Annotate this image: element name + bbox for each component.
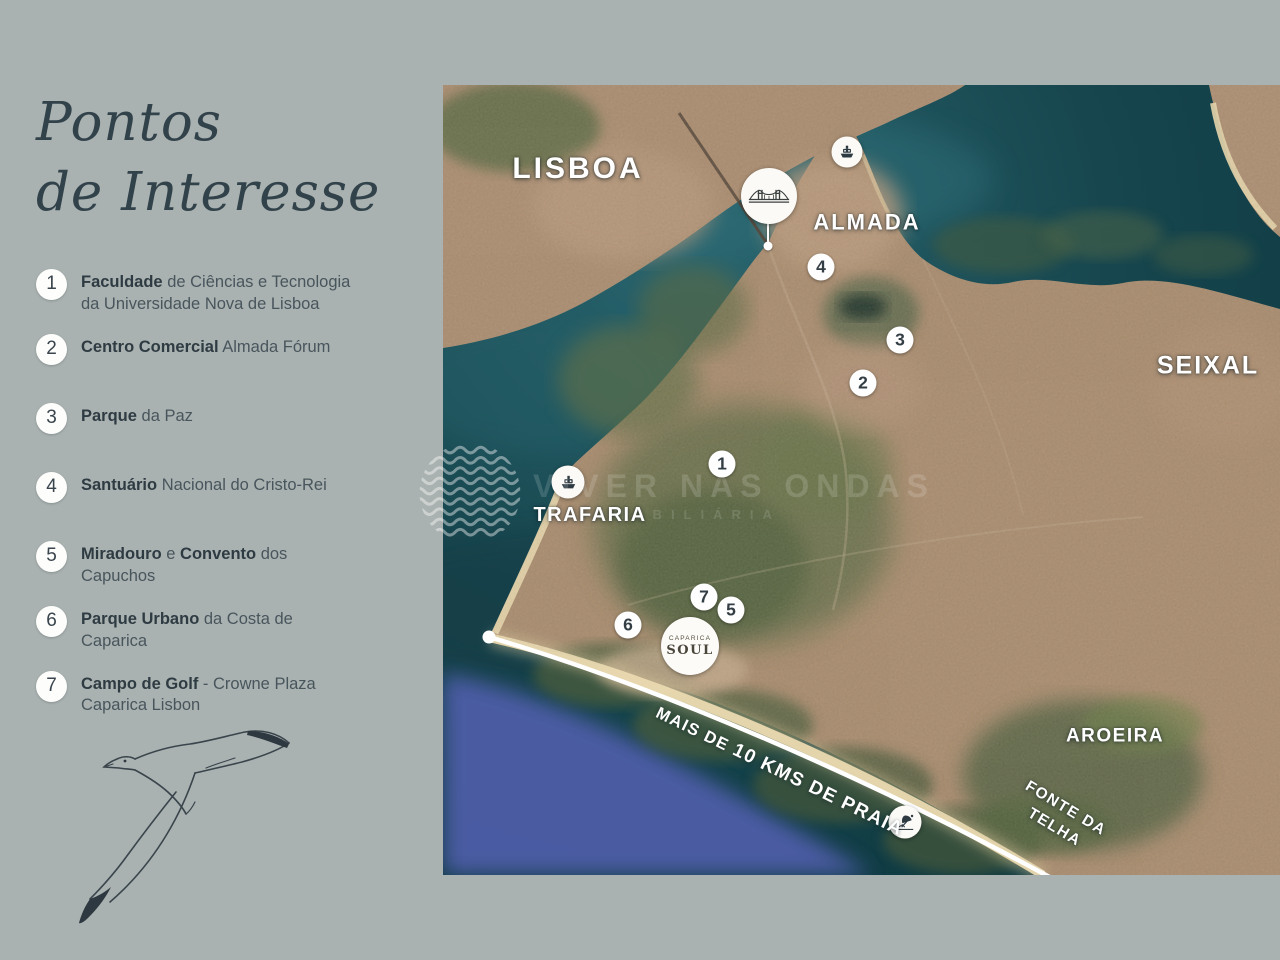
bridge-pointer-dot: [764, 242, 773, 251]
caparica-soul-logo: CAPARICA SOUL: [661, 617, 719, 675]
map-marker-7: 7: [691, 584, 718, 611]
caparica-soul-line1: CAPARICA: [669, 635, 711, 642]
map-marker-6: 6: [615, 612, 642, 639]
infographic-canvas: Pontosde Interesse 1Faculdade de Ciência…: [0, 0, 1280, 960]
poi-number-badge: 2: [36, 334, 67, 365]
poi-number-badge: 4: [36, 472, 67, 503]
poi-item: 5Miradouro e Convento dos Capuchos: [36, 540, 386, 588]
map-marker-4: 4: [808, 254, 835, 281]
poi-item: 6Parque Urbano da Costa de Caparica: [36, 605, 386, 653]
poi-item: 4Santuário Nacional do Cristo-Rei: [36, 471, 386, 503]
bridge-icon: [741, 168, 797, 224]
poi-item: 1Faculdade de Ciências e Tecnologia da U…: [36, 268, 386, 316]
page-title: Pontosde Interesse: [36, 88, 386, 228]
poi-text: Centro Comercial Almada Fórum: [81, 333, 381, 359]
map-marker-5: 5: [718, 597, 745, 624]
poi-number-badge: 3: [36, 403, 67, 434]
map-label-trafaria: TRAFARIA: [533, 501, 646, 529]
map-label-aroeira: AROEIRA: [1066, 724, 1164, 751]
map-marker-2: 2: [850, 370, 877, 397]
map-marker-3: 3: [887, 327, 914, 354]
poi-text: Parque da Paz: [81, 402, 381, 428]
ferry-icon: [832, 137, 863, 168]
poi-text: Faculdade de Ciências e Tecnologia da Un…: [81, 268, 381, 316]
sidebar: Pontosde Interesse 1Faculdade de Ciência…: [36, 88, 386, 734]
poi-number-badge: 5: [36, 541, 67, 572]
coast-distance-label: MAIS DE 10 KMS DE PRAIA: [652, 702, 907, 841]
poi-text: Santuário Nacional do Cristo-Rei: [81, 471, 381, 497]
map-label-seixal: SEIXAL: [1157, 349, 1259, 384]
poi-text: Parque Urbano da Costa de Caparica: [81, 605, 381, 653]
map-marker-1: 1: [709, 451, 736, 478]
poi-text: Miradouro e Convento dos Capuchos: [81, 540, 381, 588]
satellite-map: CAPARICA SOUL MAIS DE 10 KMS DE PRAIA VI…: [443, 85, 1280, 875]
seagull-illustration: [38, 706, 318, 936]
caparica-soul-line2: SOUL: [666, 643, 713, 658]
poi-item: 3Parque da Paz: [36, 402, 386, 434]
poi-number-badge: 6: [36, 606, 67, 637]
watermark-wave-logo: [414, 437, 526, 549]
poi-number-badge: 7: [36, 671, 67, 702]
poi-list: 1Faculdade de Ciências e Tecnologia da U…: [36, 268, 386, 735]
map-annotations: CAPARICA SOUL MAIS DE 10 KMS DE PRAIA VI…: [443, 85, 1280, 875]
poi-item: 2Centro Comercial Almada Fórum: [36, 333, 386, 365]
poi-number-badge: 1: [36, 269, 67, 300]
map-label-lisboa: LISBOA: [512, 148, 643, 190]
map-label-almada: ALMADA: [813, 208, 920, 239]
watermark-brand: VIVER NAS ONDAS: [533, 468, 935, 505]
map-label-fonte-da-telha: FONTE DA TELHA: [1010, 776, 1111, 860]
